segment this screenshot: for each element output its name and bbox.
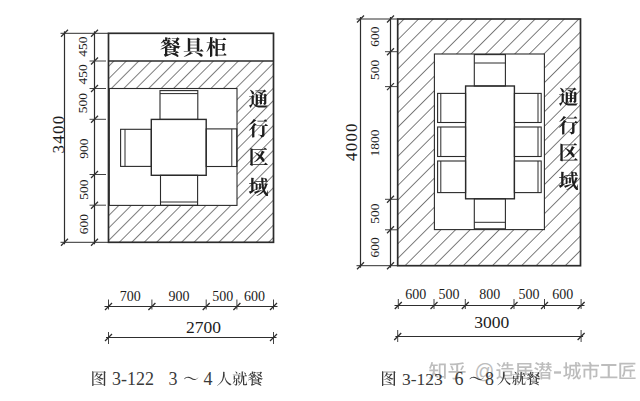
svg-text:4000: 4000 (342, 122, 361, 161)
svg-text:900: 900 (169, 289, 190, 304)
svg-text:600: 600 (367, 26, 382, 47)
svg-text:4: 4 (203, 369, 212, 389)
svg-text:500: 500 (212, 289, 233, 304)
svg-text:2700: 2700 (186, 317, 221, 337)
svg-text:500: 500 (76, 93, 91, 114)
svg-text:900: 900 (76, 138, 91, 159)
svg-text:6: 6 (455, 369, 464, 389)
svg-text:600: 600 (244, 289, 265, 304)
svg-text:500: 500 (439, 287, 460, 302)
svg-text:8: 8 (485, 369, 494, 389)
svg-text:3-122: 3-122 (112, 369, 154, 389)
svg-text:450: 450 (76, 36, 91, 57)
svg-text:800: 800 (479, 287, 500, 302)
svg-text:600: 600 (76, 214, 91, 235)
svg-text:450: 450 (76, 64, 91, 85)
svg-text:600: 600 (552, 287, 573, 302)
svg-text:3400: 3400 (49, 115, 68, 154)
svg-text:3: 3 (169, 369, 178, 389)
svg-text:700: 700 (120, 289, 141, 304)
svg-text:600: 600 (367, 237, 382, 257)
svg-text:3000: 3000 (474, 312, 509, 332)
svg-text:500: 500 (367, 203, 382, 224)
svg-text:600: 600 (405, 287, 426, 302)
svg-text:500: 500 (76, 179, 91, 200)
svg-text:500: 500 (367, 59, 382, 80)
svg-text:3-123: 3-123 (402, 369, 443, 389)
svg-text:500: 500 (519, 287, 540, 302)
svg-text:1800: 1800 (367, 129, 382, 156)
